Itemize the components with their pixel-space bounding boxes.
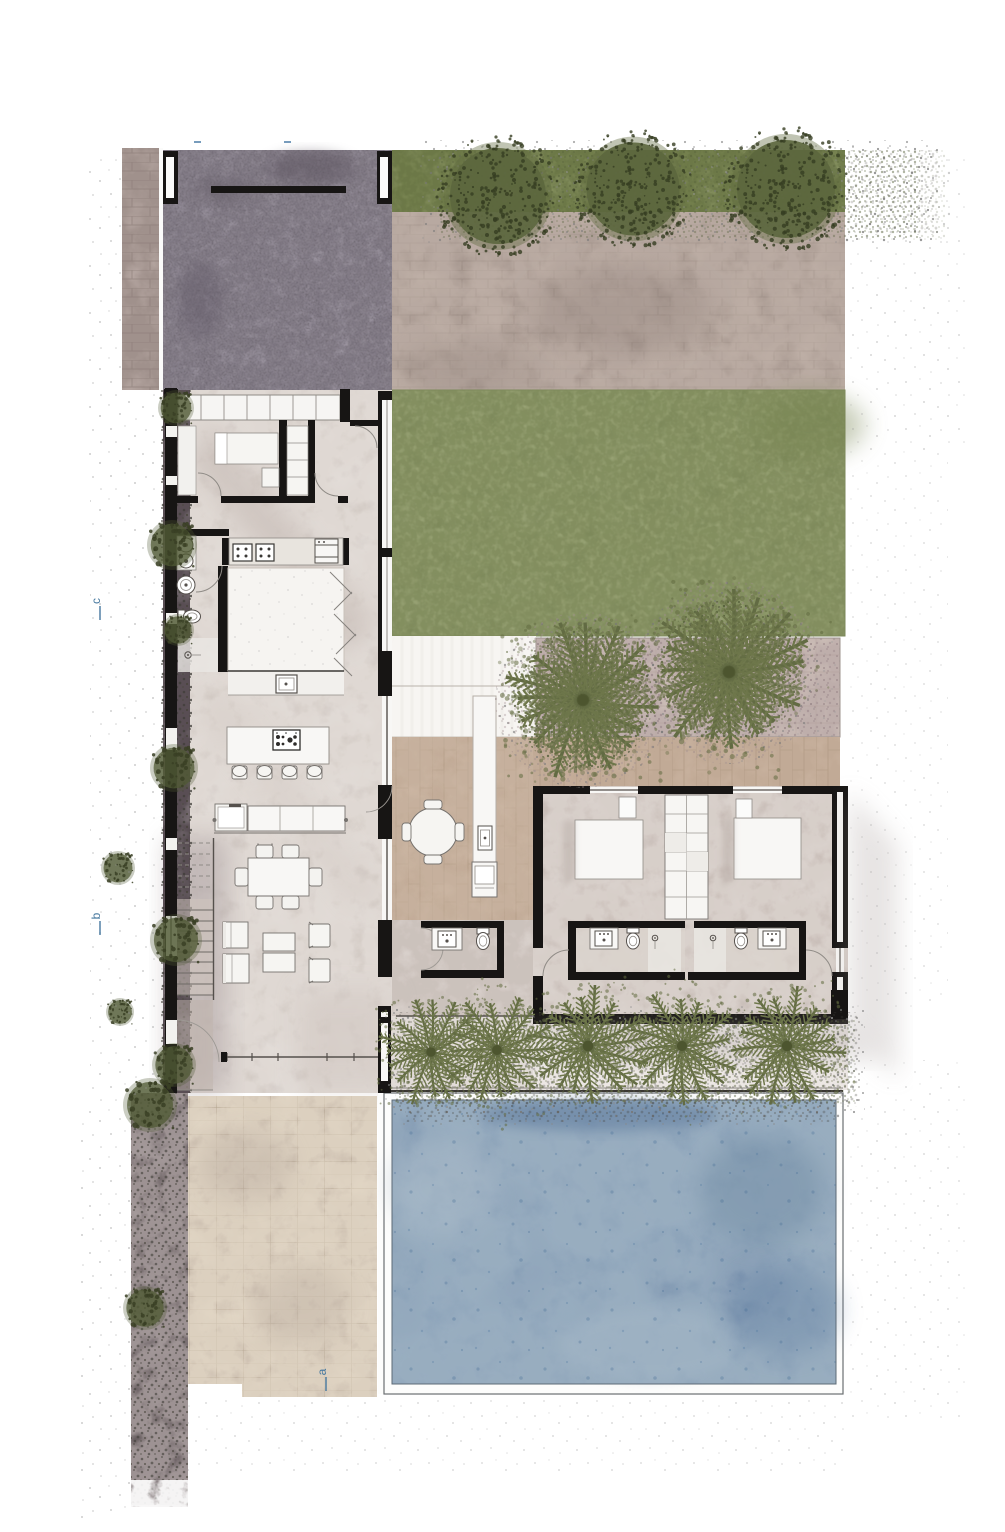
svg-text:c: c: [89, 598, 103, 604]
svg-text:a: a: [315, 1368, 329, 1375]
svg-text:b: b: [89, 912, 103, 919]
